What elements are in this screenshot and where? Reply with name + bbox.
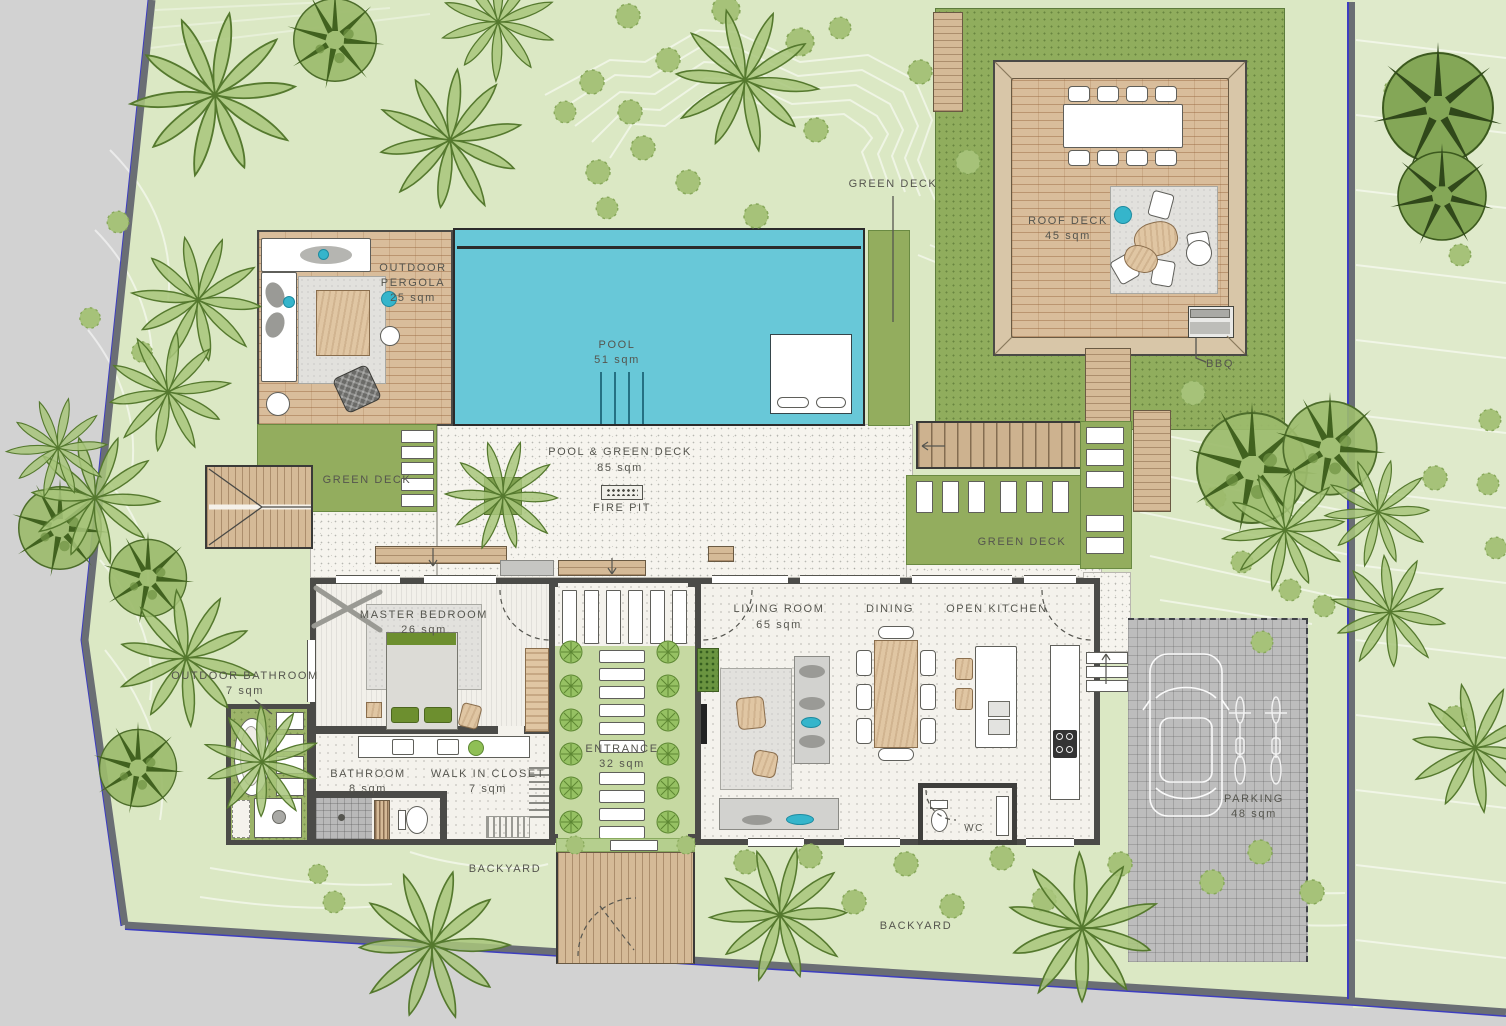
backyard-right-label: BACKYARD (880, 920, 953, 934)
motorbike (1229, 697, 1251, 784)
walk-in-closet-area: 7 sqm (469, 783, 507, 797)
green-deck-top-label: GREEN DECK (849, 178, 938, 192)
green-deck-left-label: GREEN DECK (323, 474, 412, 488)
bathroom-area: 8 sqm (349, 783, 387, 797)
pool-area: 51 sqm (594, 354, 640, 368)
parking-area: 48 sqm (1231, 808, 1277, 822)
outdoor-pergola-label-2: PERGOLA (381, 277, 445, 291)
outdoor-pergola-label-1: OUTDOOR (379, 262, 446, 276)
bbq-label: BBQ (1206, 358, 1234, 372)
pool-green-deck-area: 85 sqm (597, 462, 643, 476)
backyard-left-label: BACKYARD (469, 863, 542, 877)
palm-trees (0, 0, 1506, 1026)
master-bedroom-area: 26 sqm (401, 624, 447, 638)
site-plan: GREEN DECK ROOF DECK 45 sqm BBQ OUTDOOR … (0, 0, 1506, 1026)
parking-label: PARKING (1224, 793, 1284, 807)
roof-deck-area: 45 sqm (1045, 230, 1091, 244)
living-room-area: 65 sqm (756, 619, 802, 633)
dining-label: DINING (866, 603, 914, 617)
vegetation-and-symbols (0, 0, 1506, 1026)
bathroom-label: BATHROOM (330, 768, 406, 782)
open-kitchen-label: OPEN KITCHEN (946, 603, 1048, 617)
entrance-label: ENTRANCE (585, 743, 658, 757)
outdoor-bathroom-area: 7 sqm (226, 685, 264, 699)
car (1143, 654, 1229, 816)
pool-green-deck-label: POOL & GREEN DECK (548, 446, 692, 460)
pool-label: POOL (599, 339, 636, 353)
outdoor-bathroom-label: OUTDOOR BATHROOM (171, 670, 319, 684)
entrance-shrubs (560, 641, 679, 833)
wc-label: WC (964, 823, 984, 836)
stair-detail (209, 469, 311, 545)
fire-pit-label: FIRE PIT (593, 502, 651, 516)
motorbike (1265, 697, 1287, 784)
roof-frame-miters (995, 62, 1245, 354)
roof-deck-label: ROOF DECK (1028, 215, 1108, 229)
master-bedroom-label: MASTER BEDROOM (360, 609, 488, 623)
entrance-area: 32 sqm (599, 758, 645, 772)
living-room-label: LIVING ROOM (734, 603, 825, 617)
green-deck-right-label: GREEN DECK (978, 536, 1067, 550)
outdoor-pergola-area: 25 sqm (390, 292, 436, 306)
walk-in-closet-label: WALK IN CLOSET (431, 768, 545, 782)
